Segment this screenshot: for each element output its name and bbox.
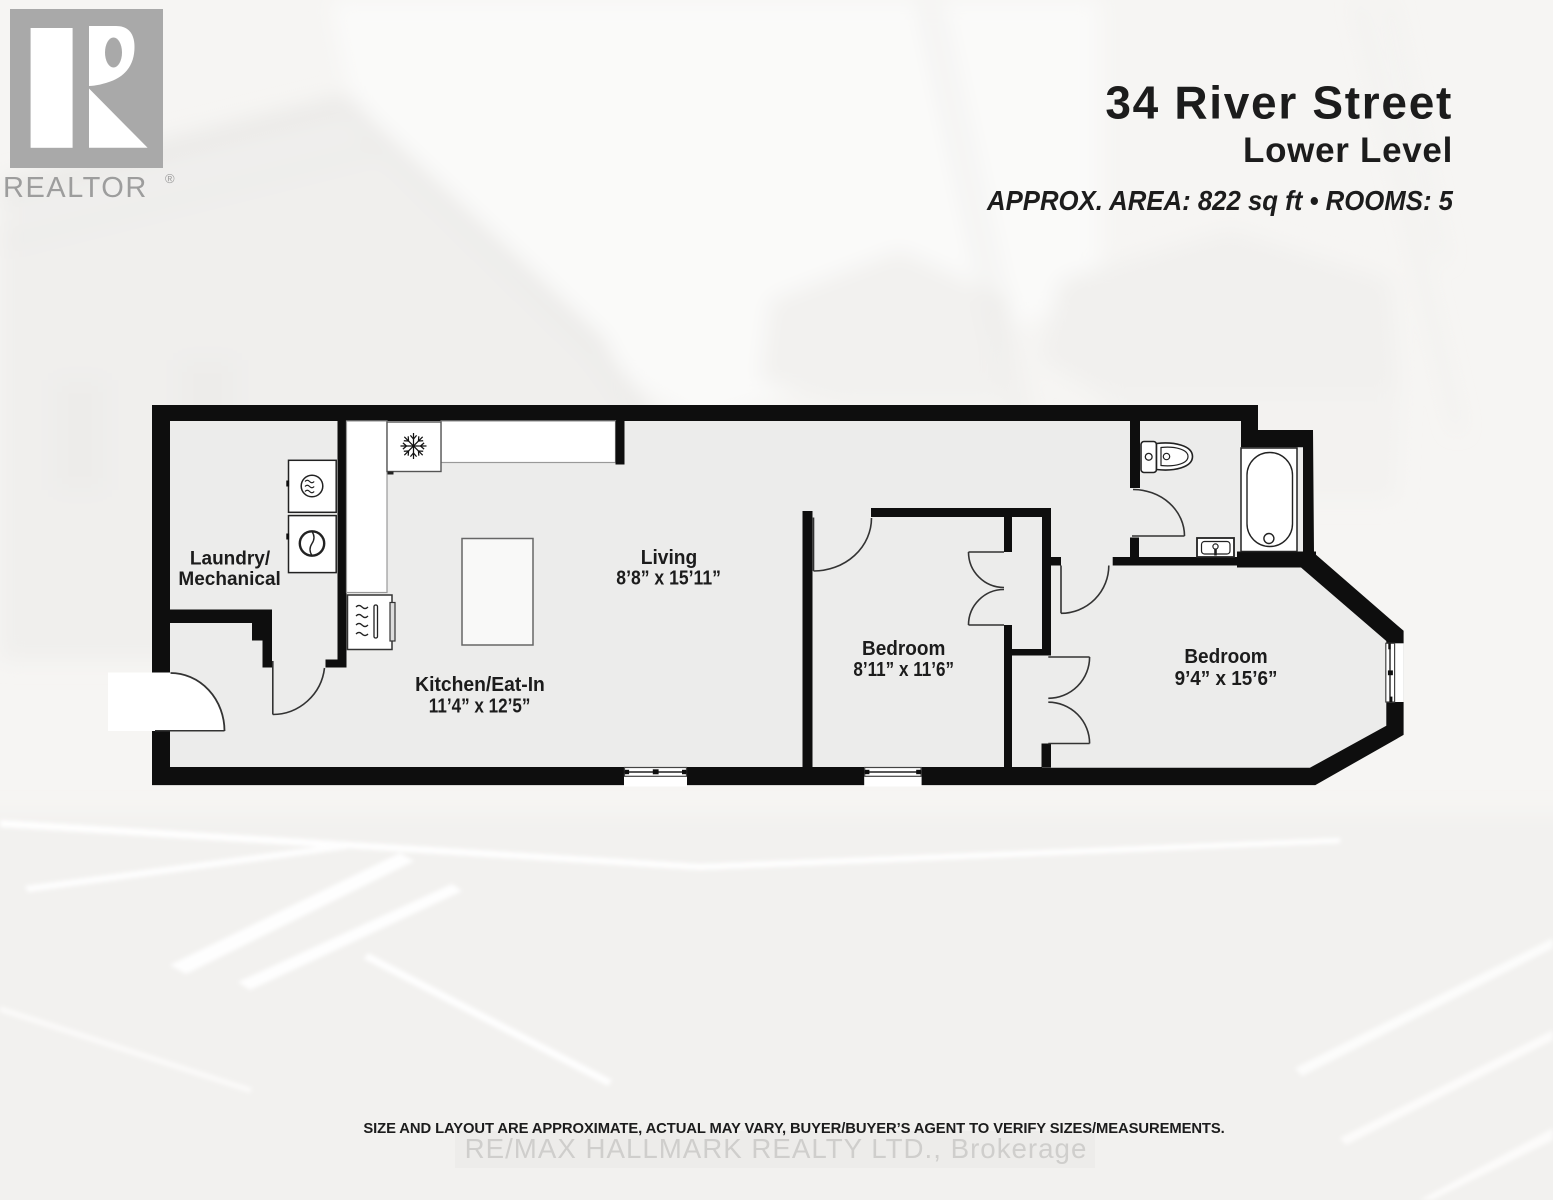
svg-text:REALTOR: REALTOR (3, 172, 148, 204)
svg-text:8’8” x 15’11”: 8’8” x 15’11” (616, 567, 721, 589)
svg-text:Kitchen/Eat-In: Kitchen/Eat-In (415, 674, 545, 696)
svg-text:Mechanical: Mechanical (178, 569, 280, 590)
svg-text:Lower Level: Lower Level (1243, 131, 1453, 170)
svg-text:8’11” x 11’6”: 8’11” x 11’6” (853, 658, 954, 681)
svg-text:11’4” x 12’5”: 11’4” x 12’5” (429, 694, 531, 717)
svg-text:34 River Street: 34 River Street (1105, 77, 1453, 129)
svg-text:Laundry/: Laundry/ (190, 549, 271, 570)
svg-text:RE/MAX HALLMARK REALTY LTD., B: RE/MAX HALLMARK REALTY LTD., Brokerage (465, 1133, 1088, 1164)
svg-text:Bedroom: Bedroom (1184, 646, 1267, 669)
svg-text:®: ® (165, 171, 175, 186)
svg-text:SIZE AND LAYOUT ARE APPROXIMAT: SIZE AND LAYOUT ARE APPROXIMATE, ACTUAL … (363, 1121, 1224, 1137)
svg-text:9’4” x 15’6”: 9’4” x 15’6” (1175, 668, 1278, 691)
svg-text:APPROX. AREA: 822 sq ft • ROOM: APPROX. AREA: 822 sq ft • ROOMS: 5 (986, 185, 1454, 216)
